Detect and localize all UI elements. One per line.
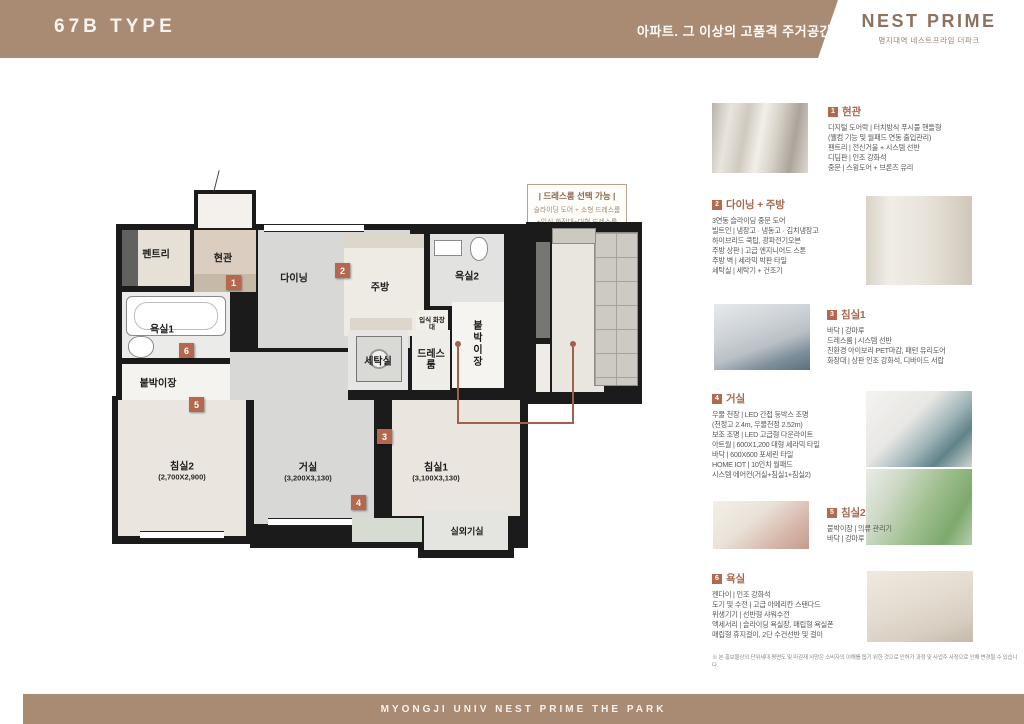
plan-marker-2: 2: [335, 263, 350, 278]
brand-subtitle: 명지대역 네스트프라임 더파크: [848, 35, 1010, 46]
section-number-badge: 1: [828, 107, 838, 117]
alt-floor-lower: [536, 344, 550, 392]
section-kitchen: 2 다이닝 + 주방 3연동 슬라이딩 중문 도어빌트인 | 냉장고 · 냉동고…: [712, 197, 864, 276]
option-line-left: [457, 347, 459, 422]
floor-plan: 펜트리 현관 다이닝 주방 욕실2 입식 화장대 세탁실 드레스룸 붙박이장 욕…: [112, 178, 652, 580]
room-size-living: (3,200X3,130): [284, 474, 332, 483]
alt-cabinet-top: [552, 228, 596, 244]
toilet-icon: [128, 336, 154, 358]
section-number-badge: 6: [712, 574, 722, 584]
kitchen-counter: [344, 234, 424, 248]
section-bathroom: 6 욕실 젠다이 | 인조 강화석도기 및 수전 | 고급 아메리칸 스탠다드위…: [712, 571, 864, 640]
section-bedroom1-lines: 바닥 | 강마루드레스룸 | 시스템 선반친환경 아이보리 PET마감, 패턴 …: [827, 326, 1013, 366]
alt-cabinets: [594, 232, 638, 386]
section-bedroom2-title: 5 침실2: [827, 505, 1013, 520]
section-bedroom1: 3 침실1 바닥 | 강마루드레스룸 | 시스템 선반친환경 아이보리 PET마…: [827, 307, 1013, 366]
option-line-bottom: [457, 422, 574, 424]
section-entrance: 1 현관 디지털 도어락 | 터치방식 푸시풀 핸들형(웰컴 기능 및 월패드 …: [828, 104, 1014, 173]
section-bedroom1-title: 3 침실1: [827, 307, 1013, 322]
section-bedroom2-lines: 붙박이장 | 의류 관리기바닥 | 강마루: [827, 524, 1013, 544]
section-kitchen-lines: 3연동 슬라이딩 중문 도어빌트인 | 냉장고 · 냉동고 · 김치냉장고하이브…: [712, 216, 864, 276]
entrance-door-floor: [198, 194, 252, 228]
room-label-dressroom: 드레스룸: [414, 349, 448, 371]
toilet2-icon: [470, 237, 488, 261]
entrance-photo: [712, 103, 808, 173]
plan-marker-1: 1: [226, 275, 241, 290]
room-size-bed2: (2,700X2,900): [158, 473, 206, 482]
section-kitchen-title: 2 다이닝 + 주방: [712, 197, 864, 212]
brochure-page: 67B TYPE 아파트. 그 이상의 고품격 주거공간 NEST PRIME …: [0, 0, 1024, 724]
room-label-outdoor: 실외기실: [450, 525, 483, 538]
header: 67B TYPE 아파트. 그 이상의 고품격 주거공간 NEST PRIME …: [0, 0, 1024, 58]
section-number-badge: 4: [712, 394, 722, 404]
header-tagline: 아파트. 그 이상의 고품격 주거공간: [520, 21, 832, 40]
section-entrance-title: 1 현관: [828, 104, 1014, 119]
bathtub-inner-icon: [134, 302, 218, 330]
balcony-floor: [352, 518, 422, 542]
section-number-badge: 5: [827, 508, 837, 518]
section-living-lines: 우물 천장 | LED 간접 등박스 조명(천정고 2.4m, 우물천정 2.5…: [712, 410, 864, 480]
room-label-entrance: 현관: [214, 250, 232, 265]
kitchen-photo: [866, 196, 972, 285]
plan-marker-5: 5: [189, 397, 204, 412]
room-label-closet-right: 붙박이장: [472, 321, 484, 369]
section-bathroom-title: 6 욕실: [712, 571, 864, 586]
brand-name: NEST PRIME: [848, 11, 1010, 32]
plan-marker-6: 6: [179, 343, 194, 358]
living-window: [268, 518, 356, 526]
room-label-pantry: 펜트리: [142, 246, 170, 261]
room-label-dining: 다이닝: [280, 270, 308, 285]
footer-bar: MYONGJI UNIV NEST PRIME THE PARK: [23, 694, 1024, 724]
plan-marker-4: 4: [351, 495, 366, 510]
sink-icon: [434, 240, 462, 256]
section-living-title: 4 거실: [712, 391, 864, 406]
unit-type-label: 67B TYPE: [54, 16, 176, 38]
bedroom2-photo: [713, 501, 809, 549]
room-label-laundry: 세탁실: [364, 353, 392, 368]
brand-logo: NEST PRIME 명지대역 네스트프라임 더파크: [848, 11, 1010, 46]
kitchen-island: [350, 318, 412, 330]
bedroom1-photo: [714, 304, 810, 370]
section-bathroom-lines: 젠다이 | 인조 강화석도기 및 수전 | 고급 아메리칸 스탠다드위생기기 |…: [712, 590, 864, 640]
room-label-closet-left: 붙박이장: [140, 375, 177, 390]
living-photo: [866, 391, 972, 467]
hall-floor: [230, 352, 348, 400]
room-label-vanity: 입식 화장대: [417, 317, 447, 331]
room-label-living: 거실: [299, 459, 317, 474]
section-living: 4 거실 우물 천장 | LED 간접 등박스 조명(천정고 2.4m, 우물천…: [712, 391, 864, 480]
plan-marker-3: 3: [377, 429, 392, 444]
room-label-bath1: 욕실1: [150, 321, 174, 336]
bed1-floor: [392, 400, 520, 516]
room-label-bath2: 욕실2: [455, 268, 479, 283]
bed2-window: [140, 531, 224, 539]
room-size-bed1: (3,100X3,130): [412, 474, 460, 483]
section-entrance-lines: 디지털 도어락 | 터치방식 푸시풀 핸들형(웰컴 기능 및 월패드 연동 출입…: [828, 123, 1014, 173]
door-swing-icon: [213, 170, 219, 192]
section-bedroom2: 5 침실2 붙박이장 | 의류 관리기바닥 | 강마루: [827, 505, 1013, 544]
alt-dark-strip: [536, 242, 550, 338]
footer-text: MYONGJI UNIV NEST PRIME THE PARK: [381, 704, 667, 715]
dining-window: [264, 224, 364, 232]
room-label-bed2: 침실2: [170, 458, 194, 473]
section-number-badge: 3: [827, 310, 837, 320]
disclaimer-text: ※ 본 홍보물상의 단위세대 평면도 및 마감재 사양은 소비자의 이해를 돕기…: [712, 653, 1018, 669]
room-label-kitchen: 주방: [371, 279, 389, 294]
section-number-badge: 2: [712, 200, 722, 210]
entrance-step: [194, 274, 256, 292]
room-label-bed1: 침실1: [424, 459, 448, 474]
option-line-right: [572, 347, 574, 422]
pantry-shelf: [122, 230, 138, 286]
bathroom-photo: [867, 571, 973, 642]
